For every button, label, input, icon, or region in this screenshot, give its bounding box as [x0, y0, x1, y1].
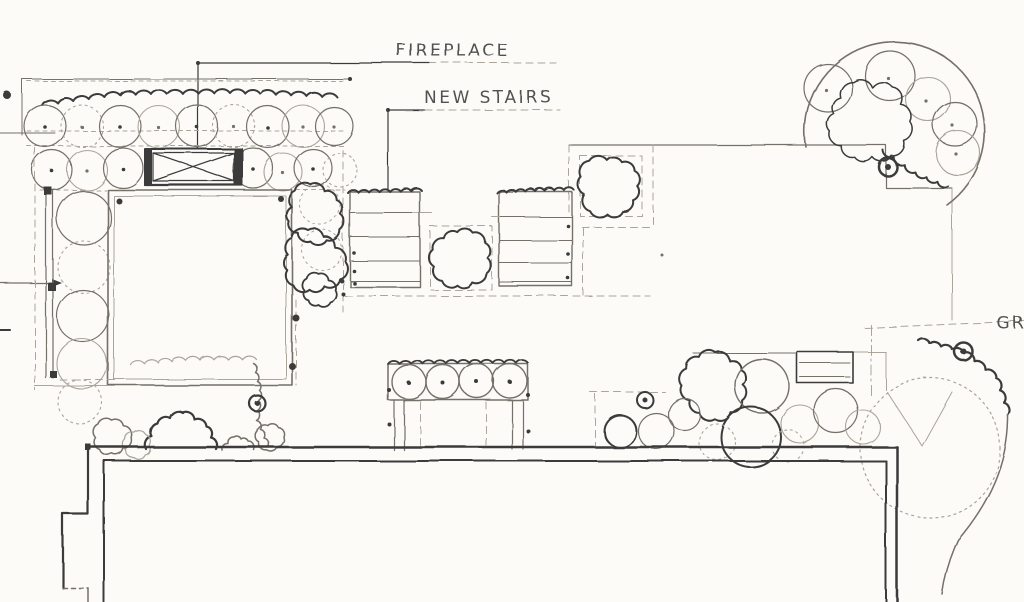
stair-shrub-square [429, 226, 492, 290]
right-hedge [283, 183, 347, 306]
plant-dot [301, 125, 304, 128]
stair-flight-right [497, 188, 574, 286]
house-wall-left [63, 447, 88, 588]
corner-dot [289, 363, 296, 370]
scanned-drawing: FIREPLACE NEW STAIRS GR [0, 0, 1024, 602]
stair-outline [350, 192, 420, 287]
canopy-lobe [906, 77, 950, 121]
plant-dot [50, 169, 54, 173]
plant-dot [266, 126, 270, 130]
plan-boundary [0, 77, 952, 396]
plant-dot [311, 167, 315, 171]
tread-dot [566, 252, 570, 256]
left-shrub-column [57, 191, 111, 424]
plant-dot [157, 126, 160, 129]
ink-blob [341, 292, 345, 296]
bench-slats [800, 363, 850, 377]
plant-dot [441, 381, 445, 385]
lobe-dot [886, 76, 889, 79]
boulder [721, 407, 781, 467]
plant-dot [80, 125, 83, 128]
tread-dot [352, 251, 356, 255]
house-outline [63, 444, 897, 602]
boulder-shrub-cluster [590, 254, 952, 468]
stair-flight-left [348, 188, 422, 287]
shrub-circle [57, 191, 111, 245]
fireplace-end-cap [144, 149, 152, 185]
shrub-circle [323, 153, 357, 187]
wedge-lines [887, 392, 952, 446]
boulder [781, 405, 819, 443]
canopy-inner-cloud [827, 79, 913, 161]
lamp-marker-dot [643, 398, 648, 403]
patio-outer [108, 190, 292, 385]
canopy-lobe [865, 51, 915, 101]
new-stairs-label: NEW STAIRS [424, 88, 554, 108]
canopy-tail [942, 415, 1008, 594]
tree-canopy-arc [805, 42, 985, 205]
lobe-dot [924, 99, 927, 102]
shrub-circle [58, 380, 102, 424]
lawn-boundary [569, 145, 952, 188]
corner-dot [116, 198, 122, 204]
foundation-planting-bed [35, 356, 284, 460]
tree-top-right [804, 42, 985, 205]
corner-mark [50, 371, 57, 378]
bed-top-scallop [130, 356, 256, 364]
leader-dot [386, 108, 390, 112]
ink-blob [339, 278, 344, 283]
fireplace-end-cap [234, 149, 242, 185]
canopy-lobe [936, 131, 980, 175]
tread-dot [566, 276, 570, 280]
hedge-top [42, 89, 337, 105]
firebox-cross [153, 153, 234, 181]
planter-leg [394, 400, 523, 450]
plant-dot [85, 169, 88, 172]
wall-cloud [123, 431, 150, 460]
shrub-mound [145, 411, 217, 449]
shrub-cloud [429, 228, 491, 287]
shrub-circle [57, 290, 109, 342]
planter-bench [387, 360, 530, 450]
new-stairs-leader-line [388, 110, 425, 192]
edge-blob [293, 315, 300, 322]
tread-dot [352, 281, 356, 285]
edge-dot [526, 429, 530, 433]
plant-dot [121, 167, 125, 171]
tread-dot [566, 224, 570, 228]
plant-dot [508, 380, 512, 384]
boulder [638, 413, 674, 449]
garden-stairs [339, 156, 643, 296]
patio-inner [114, 196, 286, 379]
fireplace-symbol [144, 149, 242, 185]
plant-dot [43, 125, 47, 129]
landscape-plan-sketch: FIREPLACE NEW STAIRS GR [0, 0, 1024, 602]
edge-label: GR [997, 314, 1024, 334]
tree-bottom-right [860, 338, 1010, 594]
upper-planting-bed [24, 89, 357, 424]
smudge-dot [3, 91, 11, 99]
plant-dot [475, 380, 479, 384]
tree-trunk-dot [885, 164, 891, 170]
corner-dot [278, 196, 284, 202]
stair-outline [499, 192, 572, 286]
tread-dot [352, 269, 356, 273]
stair-shrub-square-upper [578, 156, 642, 217]
shrub-row-1 [24, 105, 353, 148]
lobe-dot [824, 88, 827, 91]
plant-dot [195, 125, 199, 129]
stair-tread [350, 213, 420, 281]
plant-dot [332, 125, 335, 128]
planter-leg-dash [420, 402, 486, 450]
patio [108, 190, 300, 385]
speck [661, 254, 664, 257]
plant-dot [281, 171, 284, 174]
leader-dot [196, 61, 200, 65]
shrub-circle [300, 185, 340, 225]
plant-dot [232, 125, 235, 128]
boulder [699, 424, 735, 460]
stair-tread [499, 217, 572, 282]
edge-dot [526, 393, 530, 397]
corner-mark [48, 283, 56, 291]
bench-seat [797, 352, 853, 383]
plant-dot [118, 125, 122, 129]
lamp-marker-dot [255, 401, 260, 406]
edge-dot [387, 388, 391, 392]
edge-dot [387, 422, 391, 426]
corner-mark [44, 187, 52, 195]
tree-trunk-dot [960, 348, 966, 354]
lobe-dot [954, 152, 957, 155]
plant-dot [407, 381, 411, 385]
hedge-cloud [302, 272, 336, 306]
fireplace-leader-line [198, 63, 430, 149]
wall-corner-mark [85, 444, 91, 450]
shrub-cloud [578, 156, 640, 217]
stair-connector [420, 213, 500, 217]
boulder [604, 415, 636, 447]
canopy-lobe [933, 102, 977, 146]
corner-dot [348, 77, 352, 81]
boulder [814, 389, 858, 433]
fireplace-label: FIREPLACE [396, 41, 510, 61]
shrub-circle [58, 241, 110, 293]
shrub-circle [302, 230, 342, 270]
cluster-boundary-faint [853, 352, 886, 390]
lobe-dot [951, 124, 954, 127]
plant-dot [251, 167, 255, 171]
shrub-circle [57, 339, 107, 389]
